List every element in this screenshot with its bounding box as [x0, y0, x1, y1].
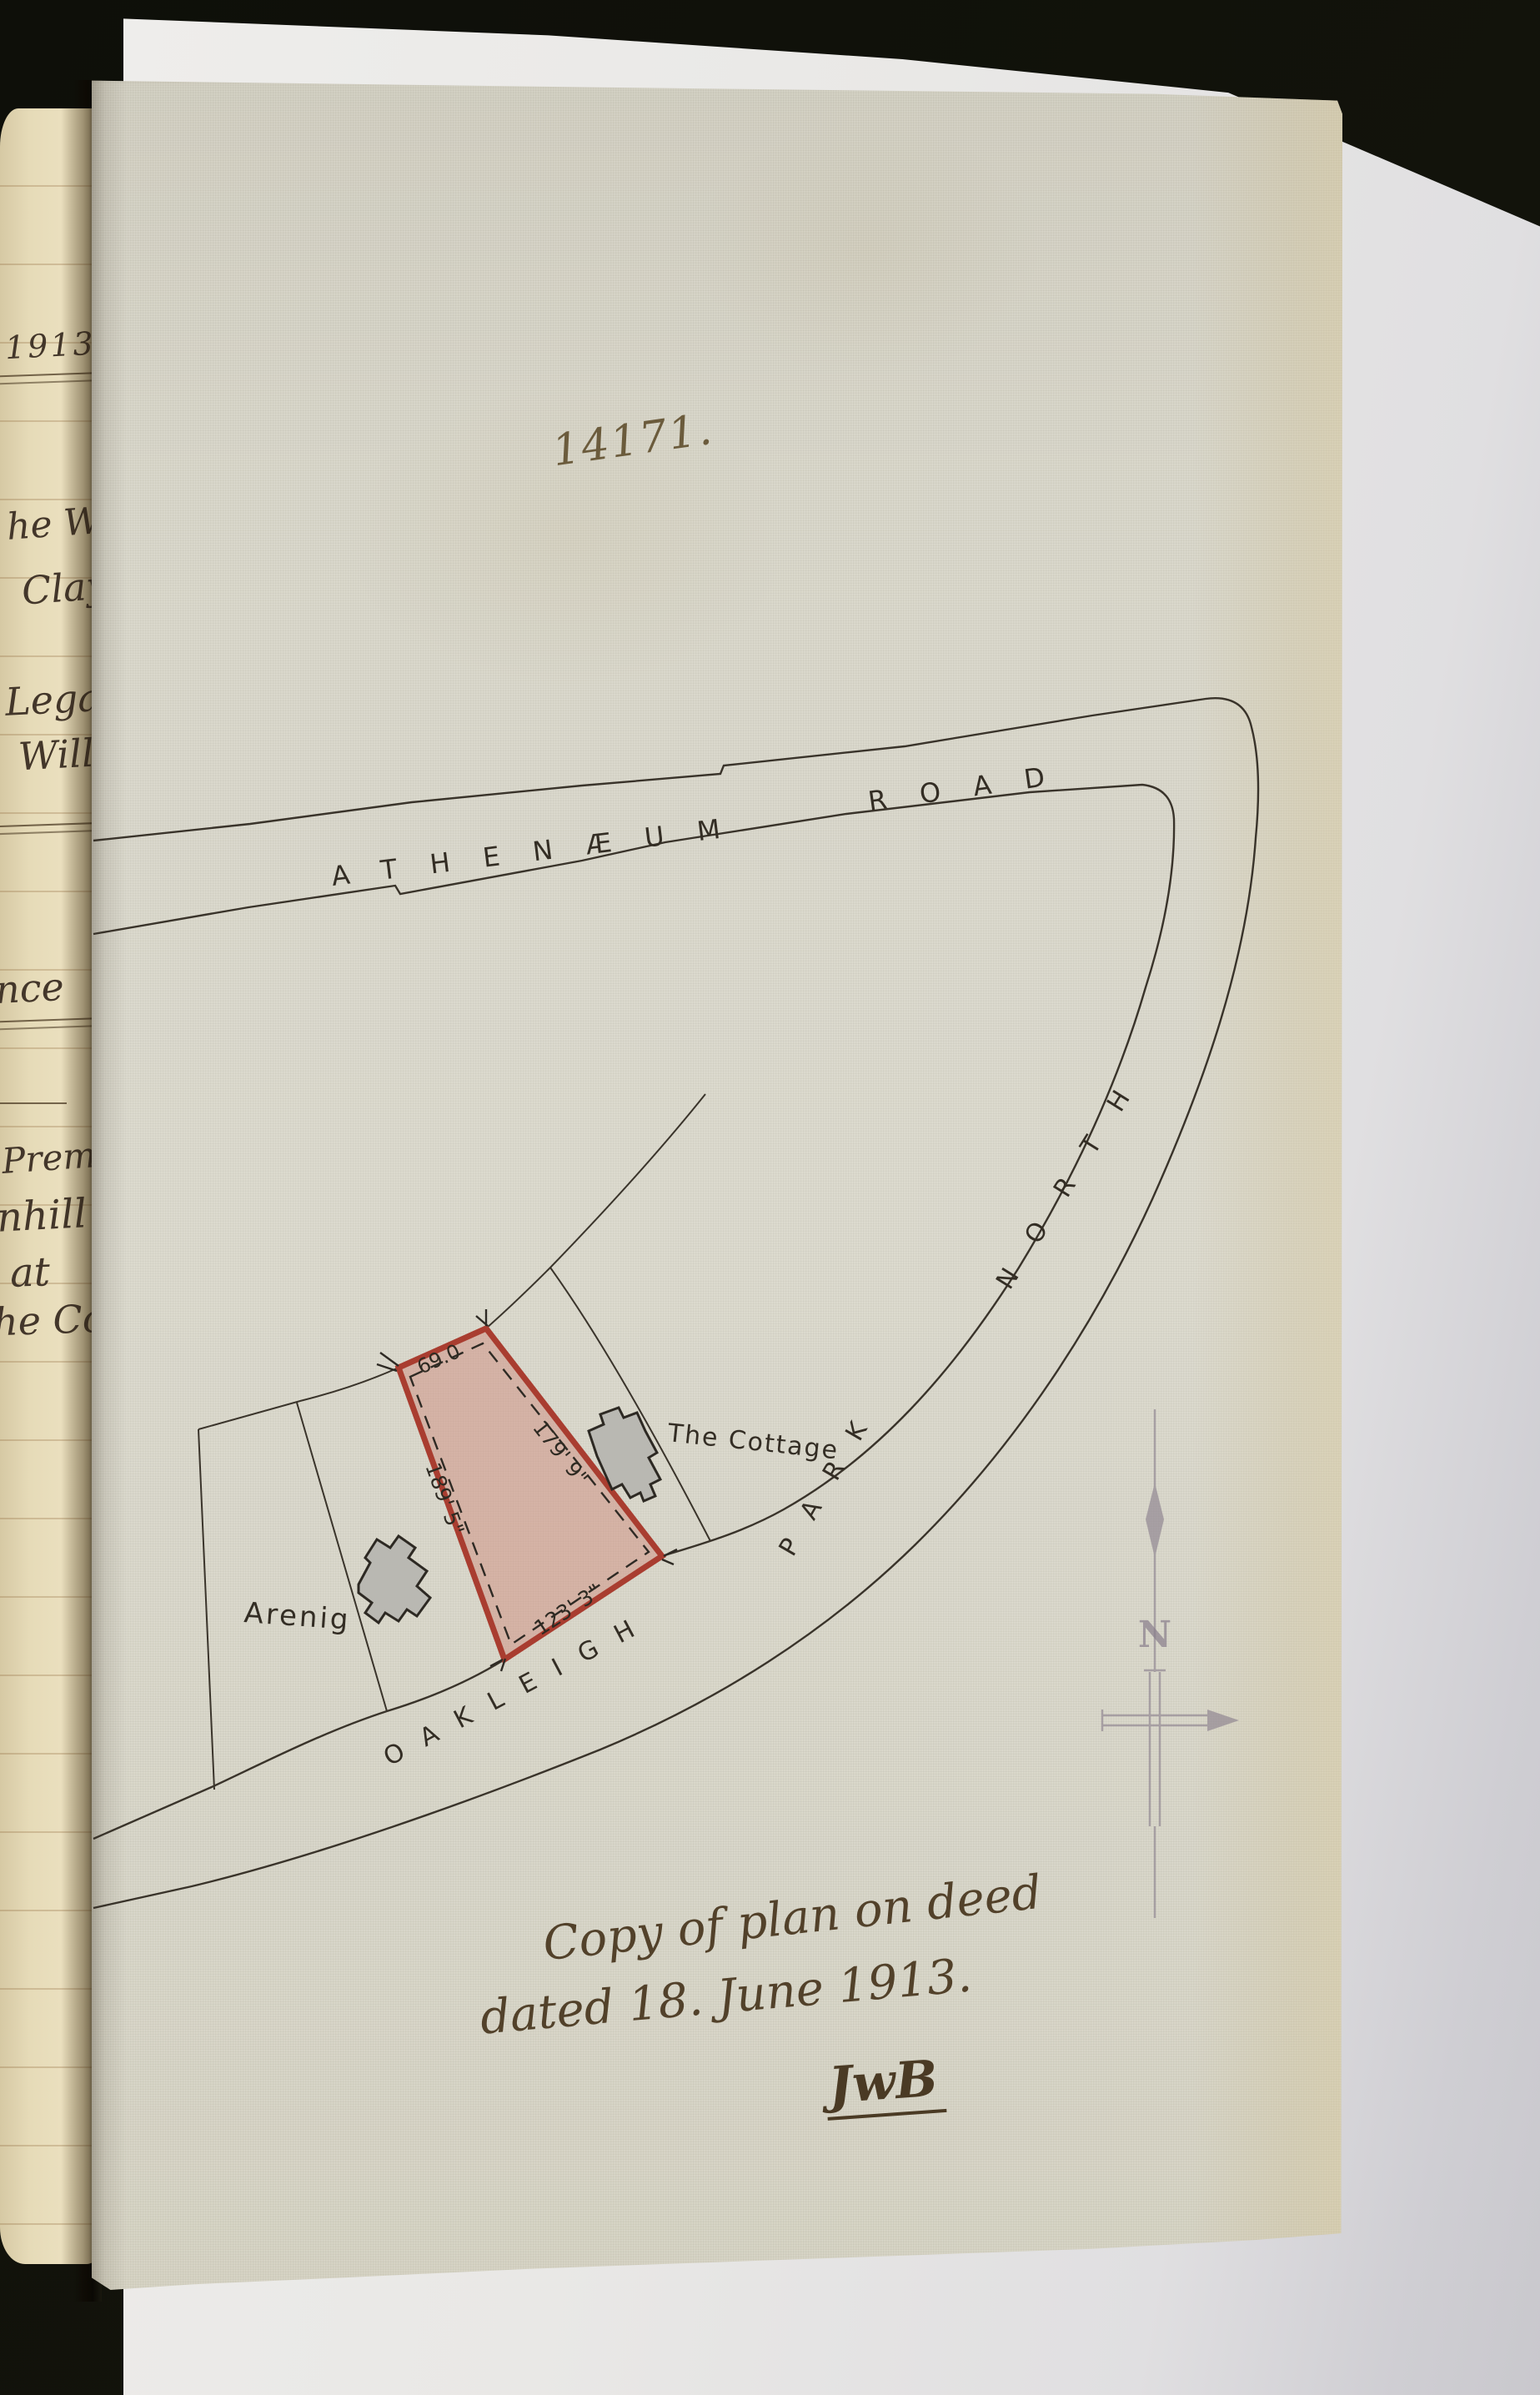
- road-label-athenaeum: ATHENÆUM: [329, 809, 755, 892]
- compass-cross: [1102, 1670, 1207, 1826]
- arenig-west-boundary: [198, 1429, 214, 1790]
- road-outline-inner: [93, 785, 1174, 1839]
- deed-note-initials: JwB: [824, 2049, 947, 2121]
- compass-north-letter: N: [1138, 1614, 1171, 1656]
- compass-spear: [1146, 1483, 1164, 1558]
- north-arrow-icon: [1102, 1409, 1239, 1918]
- arenig-building-footprint: [359, 1536, 430, 1623]
- road-outline-outer: [93, 698, 1258, 1908]
- road-label-park: PARK: [774, 1393, 888, 1561]
- deed-plan-map: ATHENÆUM ROAD OAKLEIGH PARK NORTH 69.0 1…: [0, 0, 1540, 2395]
- compass-east-arrowhead: [1207, 1710, 1239, 1731]
- property-label-arenig: Arenig: [243, 1596, 351, 1637]
- property-label-cottage: The Cottage: [665, 1418, 840, 1465]
- road-label-road: ROAD: [866, 756, 1080, 817]
- road-label-north: NORTH: [991, 1056, 1155, 1294]
